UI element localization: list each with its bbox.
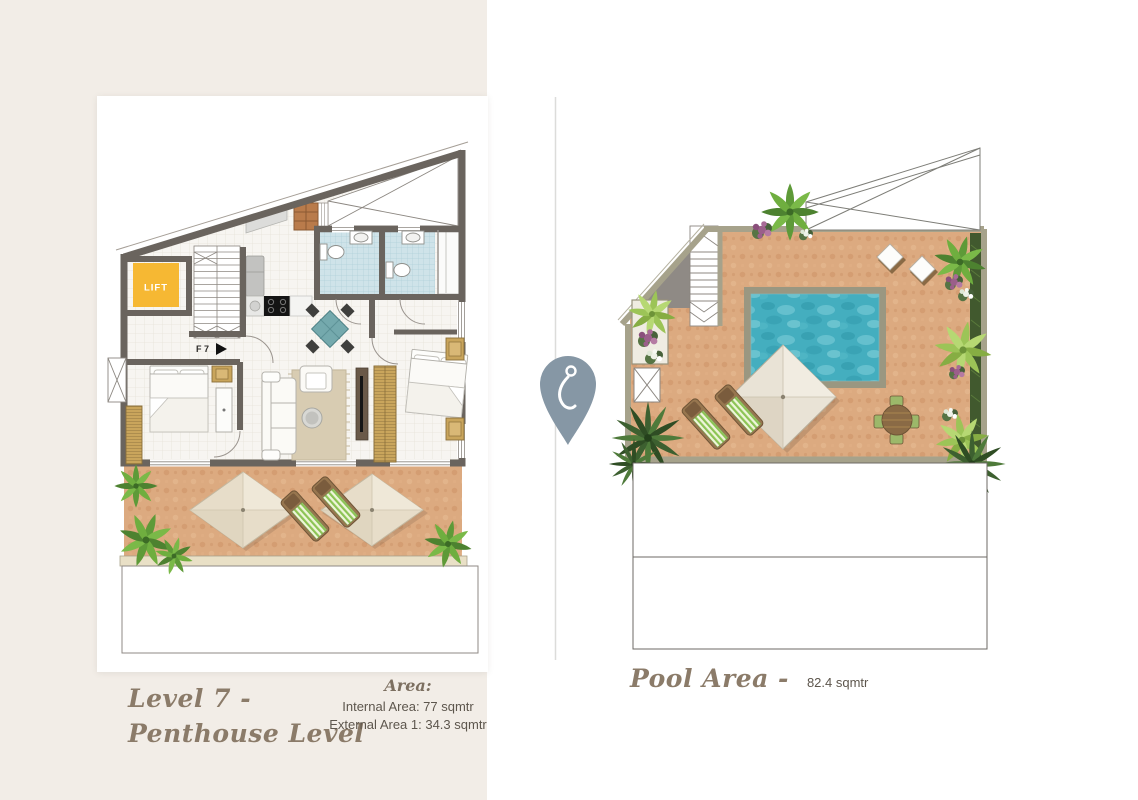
pool-title-text: Pool Area -: [630, 664, 789, 693]
internal-area: Internal Area: 77 sqmtr: [318, 698, 498, 716]
pool-area-title: Pool Area - 82.4 sqmtr: [630, 664, 868, 693]
pool-area-plan: [600, 148, 1006, 649]
lift-label: LIFT: [144, 283, 168, 294]
door-label: F 7: [196, 344, 209, 354]
area-block: Area: Internal Area: 77 sqmtr External A…: [318, 676, 498, 734]
stove: [264, 296, 290, 316]
floorplan-drawing: LIFT F 7: [0, 0, 1138, 800]
map-pin-icon: [540, 356, 596, 445]
roof-outline-below-terrace: [122, 566, 478, 653]
wardrobe-bed1: [126, 406, 142, 464]
living-room: [262, 366, 396, 462]
shaft-box-pool: [634, 368, 660, 402]
palm-plant: [114, 464, 157, 507]
sofa: [262, 372, 296, 460]
shower: [438, 230, 459, 294]
shaft-box: [108, 358, 126, 402]
roof-outline-lower: [633, 557, 987, 649]
pergola-outline: [806, 148, 980, 230]
fridge: [246, 256, 264, 296]
external-area: External Area 1: 34.3 sqmtr: [318, 716, 498, 734]
roof-outline-upper: [633, 463, 987, 557]
armchair: [300, 366, 332, 392]
brochure-page: LIFT F 7: [0, 0, 1138, 800]
area-heading: Area:: [318, 676, 498, 695]
shelf-strip: [318, 203, 328, 227]
sliding-doors: [150, 460, 450, 467]
dining-set: [305, 303, 354, 353]
pool-area-value: 82.4 sqmtr: [807, 675, 868, 690]
level7-floor-plan: LIFT F 7: [108, 142, 478, 653]
staircase: [194, 246, 240, 338]
lift: LIFT: [133, 263, 179, 307]
